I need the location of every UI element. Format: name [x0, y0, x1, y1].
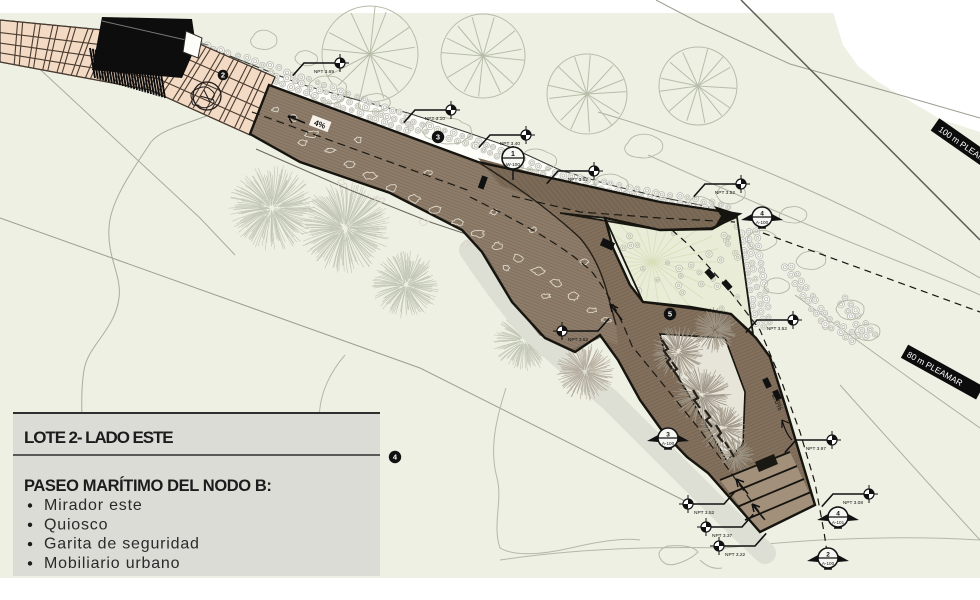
svg-text:Quiosco: Quiosco	[44, 516, 108, 533]
svg-text:3: 3	[436, 133, 440, 142]
svg-text:4: 4	[760, 211, 764, 218]
svg-text:NPT 3.52: NPT 3.52	[715, 190, 736, 196]
svg-text:LOTE 2- LADO ESTE: LOTE 2- LADO ESTE	[24, 428, 173, 447]
svg-text:W-100: W-100	[506, 162, 520, 168]
svg-text:A-100: A-100	[822, 561, 835, 566]
svg-text:NPT 3.52: NPT 3.52	[767, 326, 788, 332]
svg-text:3: 3	[666, 432, 670, 439]
svg-text:1: 1	[511, 151, 515, 158]
svg-text:NPT 3.52: NPT 3.52	[568, 177, 589, 183]
svg-text:NPT 3.52: NPT 3.52	[568, 337, 589, 343]
svg-text:NPT 3.08: NPT 3.08	[843, 500, 864, 506]
svg-text:PASEO MARÍTIMO DEL NODO B:: PASEO MARÍTIMO DEL NODO B:	[24, 476, 272, 495]
svg-text:Garita de seguridad: Garita de seguridad	[44, 536, 200, 553]
svg-text:A-101: A-101	[832, 520, 845, 525]
svg-text:4: 4	[836, 511, 840, 518]
svg-text:5: 5	[668, 310, 672, 319]
svg-text:Mirador este: Mirador este	[44, 497, 143, 514]
svg-text:A-100: A-100	[662, 441, 675, 446]
svg-text:NPT 3.52: NPT 3.52	[694, 510, 715, 516]
svg-text:NPT 3.69: NPT 3.69	[314, 69, 335, 75]
svg-text:NPT 3.37: NPT 3.37	[712, 533, 733, 539]
svg-text:NPT 3.22: NPT 3.22	[725, 552, 746, 558]
svg-text:NPT 3.10: NPT 3.10	[425, 116, 446, 122]
svg-text:NPT 3.40: NPT 3.40	[500, 141, 521, 147]
svg-text:2: 2	[221, 71, 225, 80]
svg-text:A-100: A-100	[756, 220, 769, 225]
svg-text:2: 2	[826, 552, 830, 559]
svg-text:Mobiliario urbano: Mobiliario urbano	[44, 555, 180, 572]
svg-text:NPT 3.97: NPT 3.97	[806, 446, 827, 452]
